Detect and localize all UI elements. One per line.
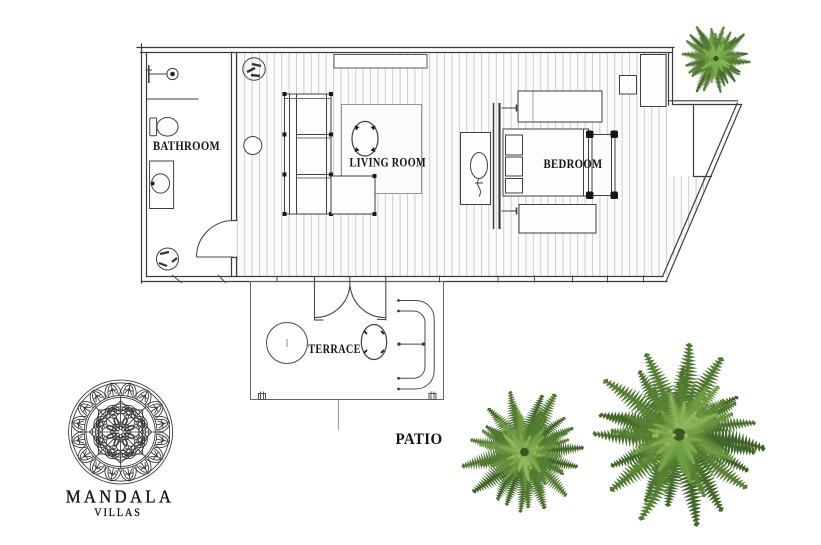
svg-text:PATIO: PATIO — [396, 431, 443, 448]
svg-text:BATHROOM: BATHROOM — [153, 139, 220, 153]
svg-text:TERRACE: TERRACE — [308, 342, 361, 356]
svg-text:VILLAS: VILLAS — [94, 505, 142, 519]
svg-text:BEDROOM: BEDROOM — [544, 157, 603, 171]
svg-text:LIVING ROOM: LIVING ROOM — [349, 156, 426, 170]
svg-text:MANDALA: MANDALA — [66, 487, 175, 507]
